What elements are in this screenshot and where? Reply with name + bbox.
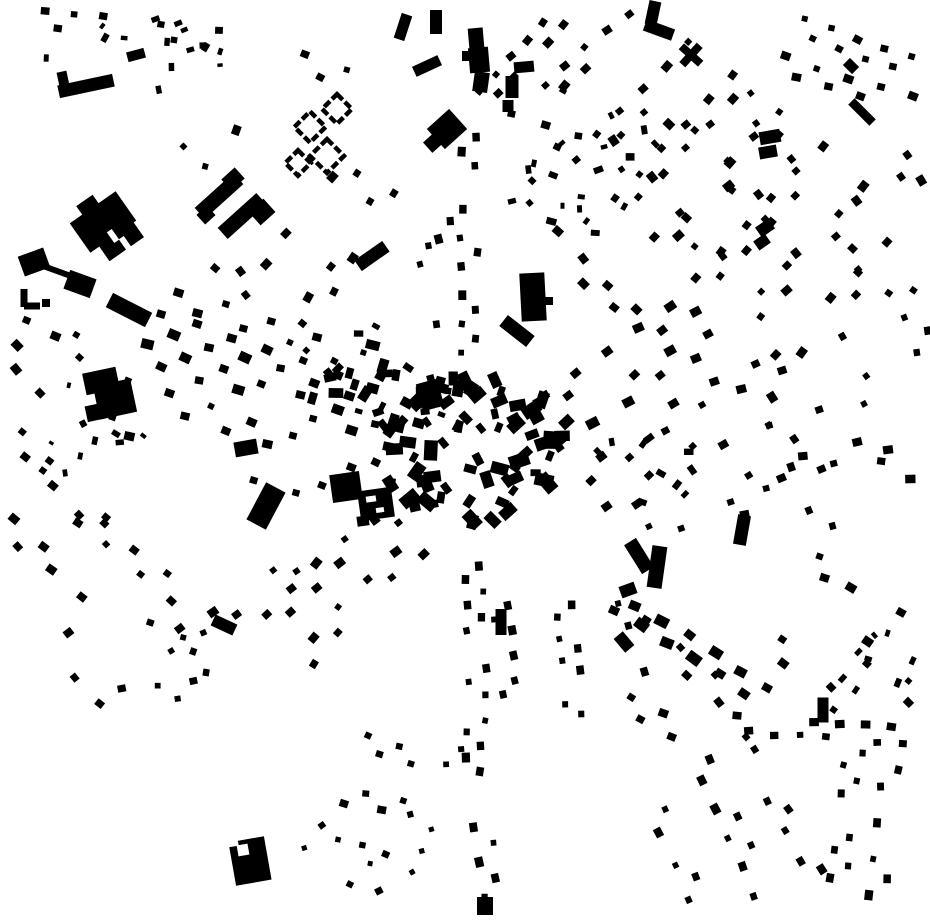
house-footprint (174, 695, 181, 702)
house-footprint (826, 873, 835, 883)
house-footprint (883, 445, 894, 454)
house-footprint (846, 833, 853, 841)
landmark-building (519, 272, 546, 321)
landmark-building (506, 76, 519, 98)
house-footprint (472, 334, 480, 342)
block-footprint (164, 38, 170, 46)
house-footprint (828, 25, 835, 32)
house-footprint (873, 739, 881, 746)
block-footprint (449, 371, 458, 385)
block-footprint (530, 469, 540, 476)
house-footprint (458, 350, 464, 356)
block-footprint (382, 370, 393, 378)
house-footprint (462, 575, 470, 584)
house-footprint (576, 665, 585, 675)
block-footprint (115, 439, 124, 445)
landmark-building-courtyard (227, 837, 238, 848)
block-footprint (577, 205, 582, 213)
house-footprint (873, 818, 881, 828)
house-footprint (462, 752, 471, 762)
house-footprint (53, 24, 62, 32)
house-footprint (40, 7, 49, 15)
house-footprint (457, 147, 466, 157)
house-footprint (482, 663, 491, 673)
building-footprint-canvas (0, 0, 930, 924)
house-footprint (433, 320, 441, 328)
landmark-building (503, 100, 514, 112)
landmark-building (472, 71, 490, 93)
landmark-building (496, 609, 507, 635)
landmark-building (545, 297, 553, 305)
house-footprint (157, 21, 165, 29)
house-footprint (202, 669, 209, 677)
block-footprint (62, 469, 68, 477)
house-footprint (362, 790, 369, 797)
house-footprint (471, 162, 478, 170)
house-footprint (744, 727, 754, 735)
map-background (0, 0, 930, 924)
landmark-building (356, 515, 369, 527)
house-footprint (886, 722, 896, 731)
house-footprint (443, 761, 449, 767)
house-footprint (458, 320, 465, 327)
house-footprint (574, 644, 582, 653)
house-footprint (809, 718, 819, 726)
house-footprint (562, 701, 568, 707)
house-footprint (770, 732, 779, 740)
house-footprint (568, 600, 576, 609)
house-footprint (458, 290, 466, 300)
house-footprint (465, 679, 472, 686)
house-footprint (477, 741, 485, 750)
house-footprint (838, 789, 845, 797)
house-footprint (99, 12, 108, 20)
house-footprint (276, 364, 285, 372)
house-footprint (924, 326, 930, 335)
house-footprint (574, 132, 582, 140)
house-footprint (899, 740, 907, 748)
house-footprint (482, 691, 488, 698)
landmark-building (42, 299, 50, 307)
house-footprint (478, 613, 485, 622)
house-footprint (335, 836, 341, 842)
landmark-building (329, 471, 363, 503)
house-footprint (425, 242, 432, 249)
house-footprint (864, 890, 873, 901)
house-footprint (490, 840, 496, 846)
block-footprint (560, 203, 564, 209)
house-footprint (835, 720, 845, 729)
house-footprint (359, 842, 366, 849)
block-footprint (329, 388, 344, 398)
block-footprint (354, 330, 363, 336)
block-footprint (44, 54, 49, 61)
landmark-building (818, 698, 829, 723)
house-footprint (117, 684, 126, 693)
house-footprint (822, 733, 830, 741)
block-footprint (684, 449, 694, 455)
house-footprint (463, 600, 471, 609)
house-footprint (554, 613, 561, 621)
house-footprint (798, 452, 808, 461)
house-footprint (883, 874, 891, 883)
landmark-building (514, 61, 535, 74)
house-footprint (446, 217, 454, 226)
house-footprint (861, 720, 871, 728)
house-footprint (845, 862, 852, 869)
house-footprint (475, 561, 483, 571)
house-footprint (626, 153, 635, 161)
house-footprint (870, 855, 877, 862)
house-footprint (732, 711, 742, 719)
landmark-building (430, 10, 442, 34)
house-footprint (797, 732, 804, 738)
house-footprint (456, 234, 463, 241)
house-footprint (458, 746, 465, 752)
house-footprint (475, 767, 484, 777)
house-footprint (472, 306, 479, 314)
landmark-building (477, 897, 493, 915)
house-footprint (472, 133, 480, 142)
house-footprint (377, 805, 387, 814)
house-footprint (853, 777, 860, 784)
house-footprint (559, 657, 566, 664)
house-footprint (480, 589, 486, 595)
house-footprint (824, 82, 834, 91)
house-footprint (464, 728, 470, 735)
house-footprint (473, 248, 481, 257)
house-footprint (859, 750, 866, 757)
house-footprint (155, 683, 161, 689)
house-footprint (194, 376, 204, 385)
house-footprint (71, 11, 78, 18)
house-footprint (877, 782, 884, 790)
block-footprint (424, 440, 438, 461)
landmark-building (468, 47, 490, 74)
block-footprint (169, 63, 175, 71)
block-footprint (217, 63, 223, 67)
landmark-building (24, 303, 40, 310)
block-footprint (525, 165, 532, 174)
house-footprint (457, 262, 465, 271)
block-footprint (399, 436, 417, 449)
block-footprint (591, 230, 600, 237)
house-footprint (482, 717, 489, 724)
house-footprint (459, 205, 466, 214)
house-footprint (215, 27, 223, 34)
house-footprint (170, 36, 177, 43)
house-footprint (905, 475, 916, 484)
house-footprint (578, 711, 584, 718)
landmark-building (462, 51, 470, 61)
block-footprint (121, 36, 128, 41)
house-footprint (469, 822, 478, 832)
house-footprint (877, 457, 886, 465)
block-footprint (577, 194, 585, 200)
house-footprint (831, 846, 839, 854)
house-footprint (913, 349, 920, 357)
landmark-building (468, 27, 485, 48)
house-footprint (367, 861, 373, 867)
figure-ground-map (0, 0, 930, 924)
